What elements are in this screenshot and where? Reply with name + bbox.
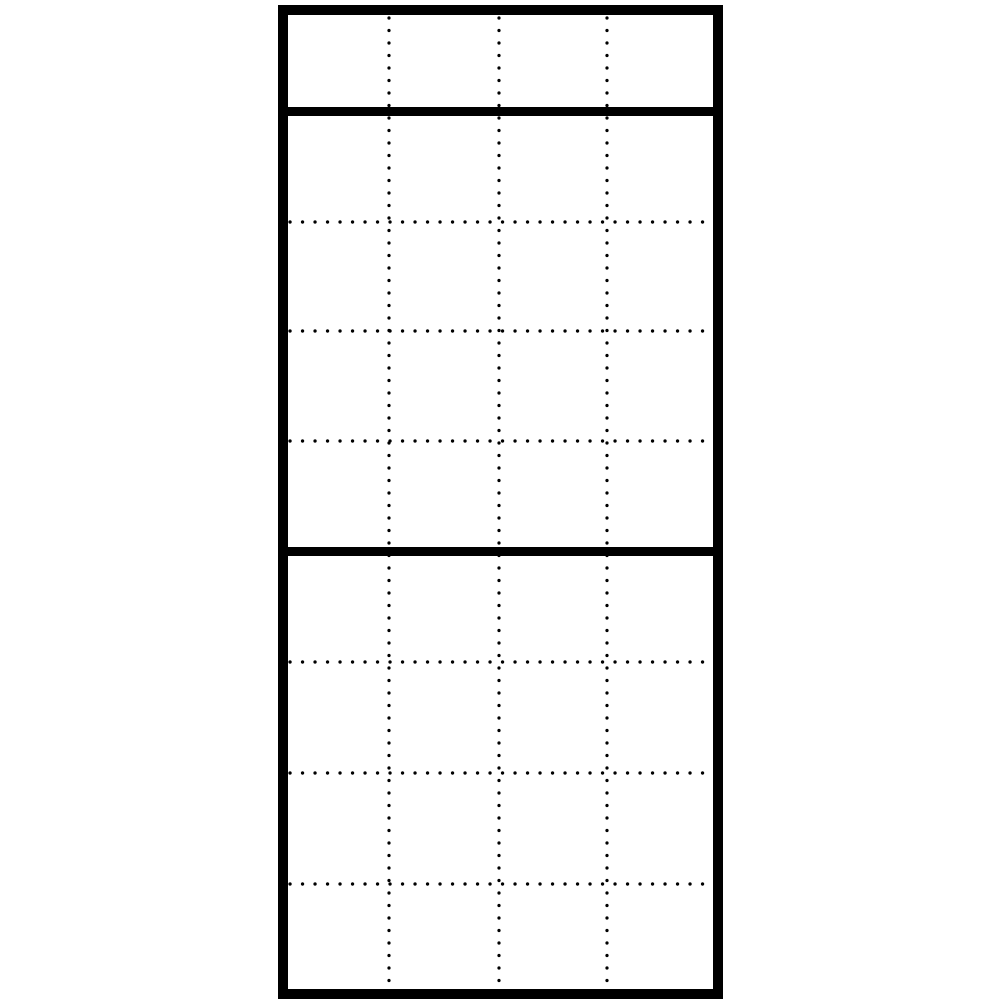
diagram-canvas	[0, 0, 1000, 1000]
frame-border	[283, 10, 718, 994]
module-grid-diagram	[0, 0, 1000, 1000]
